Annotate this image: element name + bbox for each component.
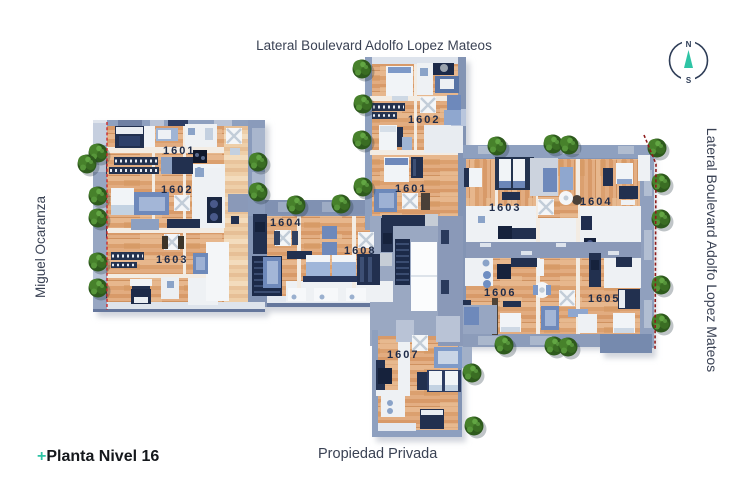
svg-text:Propiedad Privada: Propiedad Privada (318, 446, 438, 462)
svg-text:+Planta Nivel 16: +Planta Nivel 16 (37, 448, 159, 465)
svg-text:1601: 1601 (395, 183, 427, 195)
svg-text:1603: 1603 (489, 202, 521, 214)
svg-text:N: N (686, 40, 692, 49)
svg-text:Lateral Boulevard Adolfo Lopez: Lateral Boulevard Adolfo Lopez Mateos (256, 38, 492, 53)
svg-text:1604: 1604 (270, 217, 302, 229)
svg-text:1607: 1607 (387, 349, 419, 361)
svg-text:Lateral Boulevard Adolfo Lopez: Lateral Boulevard Adolfo Lopez Mateos (704, 128, 720, 372)
svg-text:1602: 1602 (161, 184, 193, 196)
svg-text:1608: 1608 (344, 245, 376, 257)
svg-text:1605: 1605 (588, 293, 620, 305)
svg-text:1603: 1603 (156, 254, 188, 266)
svg-text:1602: 1602 (408, 114, 440, 126)
svg-text:S: S (686, 76, 692, 85)
svg-text:1606: 1606 (484, 287, 516, 299)
svg-text:1604: 1604 (580, 196, 612, 208)
svg-text:1601: 1601 (163, 145, 195, 157)
svg-text:Miguel Ocaranza: Miguel Ocaranza (33, 195, 48, 298)
